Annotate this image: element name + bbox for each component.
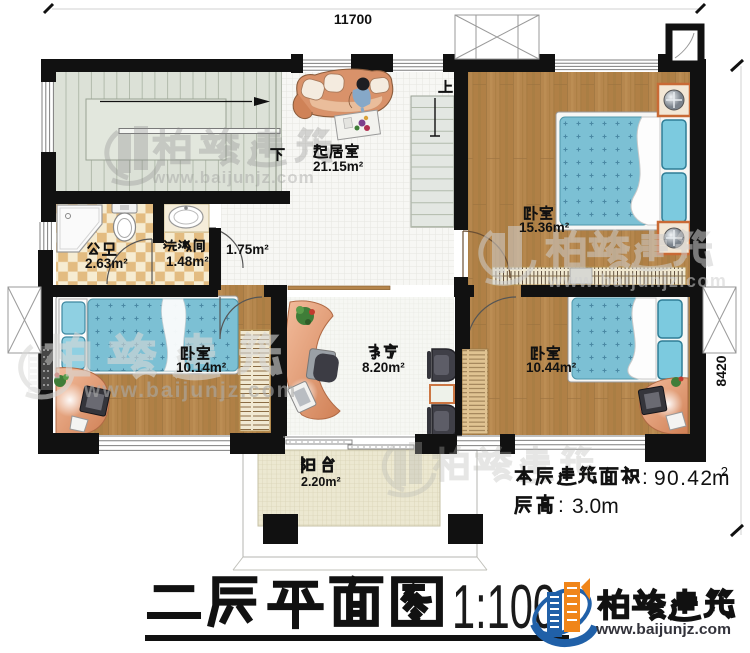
svg-text:www.baijunjz.com: www.baijunjz.com: [547, 271, 727, 291]
svg-text:1.48m²: 1.48m²: [166, 254, 209, 269]
svg-text:8420: 8420: [713, 355, 729, 386]
svg-text::: :: [558, 494, 564, 517]
svg-text:2: 2: [721, 464, 728, 479]
svg-text:21.15m²: 21.15m²: [313, 159, 364, 174]
svg-text:www.baijunjz.com: www.baijunjz.com: [83, 379, 297, 402]
svg-text:2.20m²: 2.20m²: [301, 475, 341, 489]
svg-text:1.75m²: 1.75m²: [226, 242, 269, 257]
svg-text:8.20m²: 8.20m²: [362, 360, 405, 375]
svg-text:11700: 11700: [334, 11, 372, 27]
svg-text:10.14m²: 10.14m²: [176, 360, 227, 375]
svg-text:2.63m²: 2.63m²: [85, 256, 128, 271]
svg-text::: :: [642, 466, 648, 489]
svg-text:10.44m²: 10.44m²: [526, 360, 577, 375]
svg-text:90.42: 90.42: [654, 467, 712, 490]
svg-text:www.baijunjz.com: www.baijunjz.com: [151, 168, 315, 187]
svg-text:15.36m²: 15.36m²: [519, 220, 570, 235]
svg-text:www.baijunjz.com: www.baijunjz.com: [595, 621, 731, 638]
svg-text:3.0m: 3.0m: [572, 495, 619, 518]
